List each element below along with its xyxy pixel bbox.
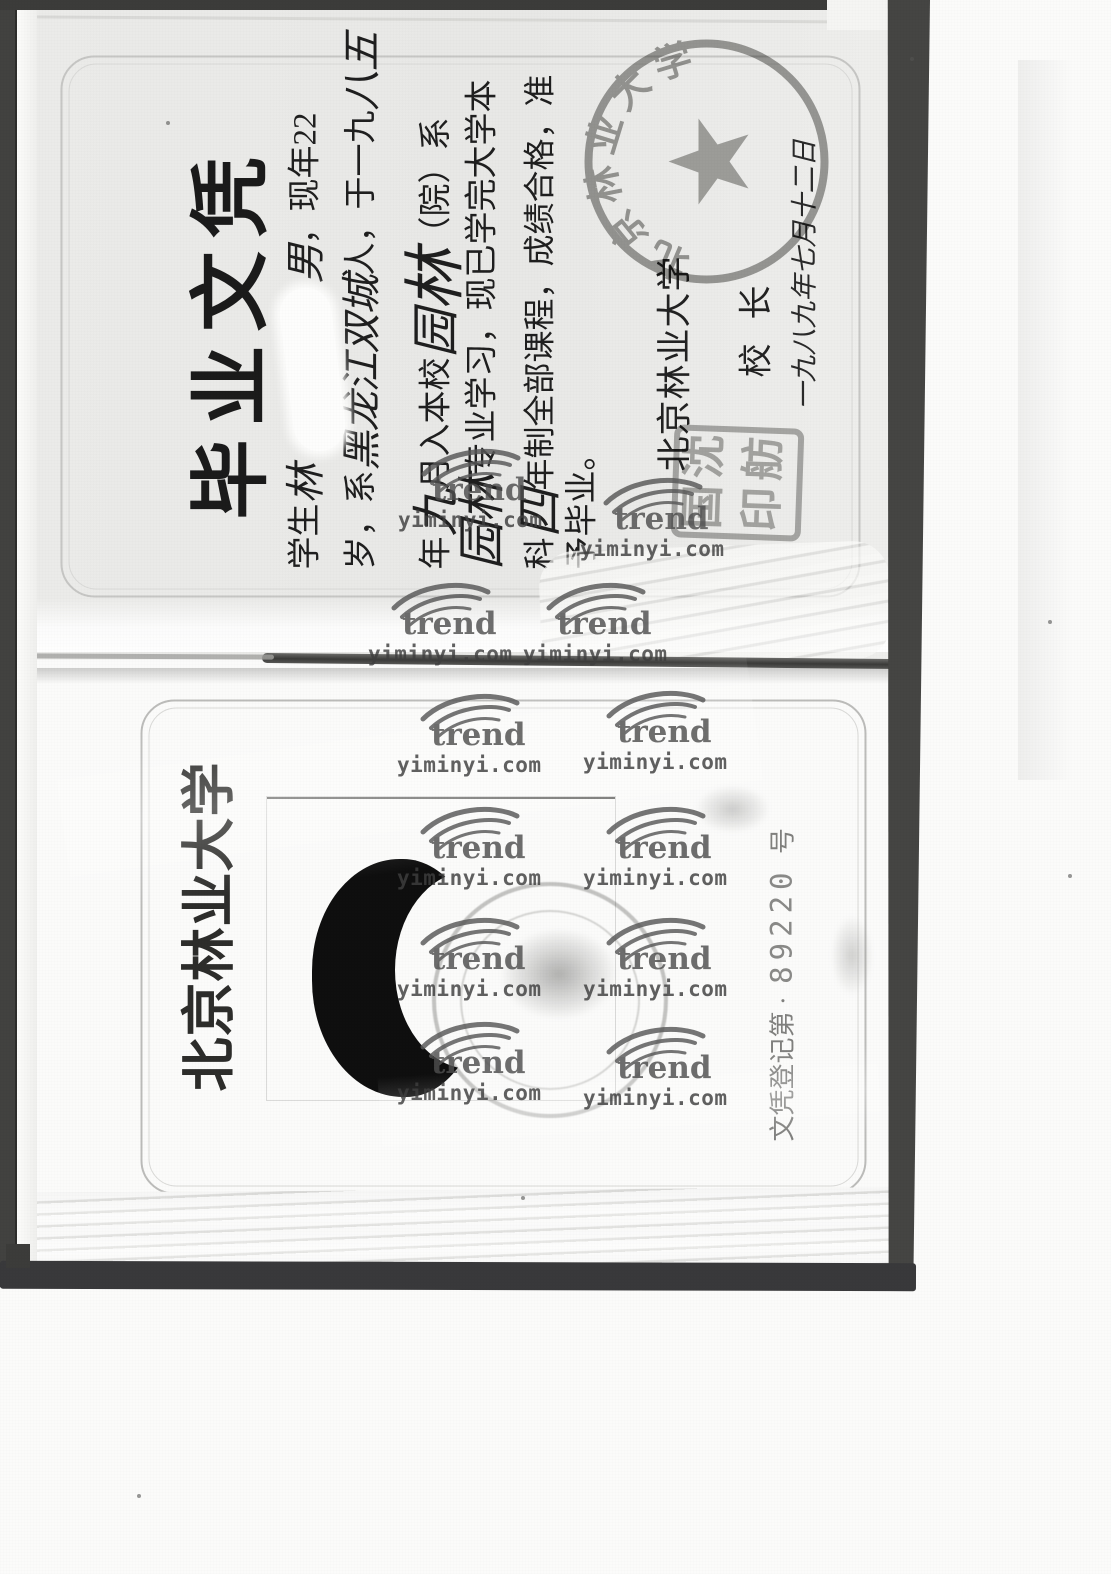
dust-speck — [1068, 874, 1072, 878]
watermark: trendyiminyi.com — [397, 915, 547, 1001]
watermark-url: yiminyi.com — [583, 977, 728, 1001]
watermark-url: yiminyi.com — [583, 1086, 728, 1110]
watermark-url: yiminyi.com — [523, 642, 668, 666]
dust-speck — [910, 57, 914, 61]
watermark-brand: trend — [431, 1045, 526, 1081]
watermark-url: yiminyi.com — [397, 753, 542, 777]
watermark: trendyiminyi.com — [580, 475, 730, 561]
dust-speck — [137, 1494, 141, 1498]
watermark-url: yiminyi.com — [398, 508, 543, 532]
watermark-brand: trend — [431, 717, 526, 753]
watermark: trendyiminyi.com — [368, 580, 518, 666]
watermark: trendyiminyi.com — [583, 915, 733, 1001]
watermark-brand: trend — [557, 606, 652, 642]
watermark-url: yiminyi.com — [368, 642, 513, 666]
watermark-brand: trend — [617, 830, 712, 866]
dust-speck — [166, 121, 170, 125]
watermark-brand: trend — [431, 830, 526, 866]
watermark-brand: trend — [432, 472, 527, 508]
dust-speck — [1048, 620, 1052, 624]
watermark-brand: trend — [617, 1050, 712, 1086]
watermark: trendyiminyi.com — [397, 1019, 547, 1105]
dust-speck — [521, 1196, 525, 1200]
watermark-brand: trend — [402, 606, 497, 642]
watermark: trendyiminyi.com — [583, 688, 733, 774]
watermark: trendyiminyi.com — [583, 804, 733, 890]
watermark-layer: trendyiminyi.comtrendyiminyi.comtrendyim… — [0, 0, 1111, 1574]
watermark-brand: trend — [614, 501, 709, 537]
watermark: trendyiminyi.com — [397, 804, 547, 890]
scanned-diploma-document: 毕业文凭 学生林，男，现年22 岁，系黑龙江双城人，于一九八五 年九月入本校园林… — [0, 0, 1111, 1574]
watermark-brand: trend — [431, 941, 526, 977]
watermark: trendyiminyi.com — [523, 580, 673, 666]
watermark: trendyiminyi.com — [398, 446, 548, 532]
watermark-brand: trend — [617, 941, 712, 977]
watermark: trendyiminyi.com — [397, 691, 547, 777]
watermark-url: yiminyi.com — [583, 750, 728, 774]
watermark-url: yiminyi.com — [397, 977, 542, 1001]
watermark: trendyiminyi.com — [583, 1024, 733, 1110]
watermark-url: yiminyi.com — [397, 1081, 542, 1105]
watermark-brand: trend — [617, 714, 712, 750]
watermark-url: yiminyi.com — [397, 866, 542, 890]
watermark-url: yiminyi.com — [583, 866, 728, 890]
watermark-url: yiminyi.com — [580, 537, 725, 561]
